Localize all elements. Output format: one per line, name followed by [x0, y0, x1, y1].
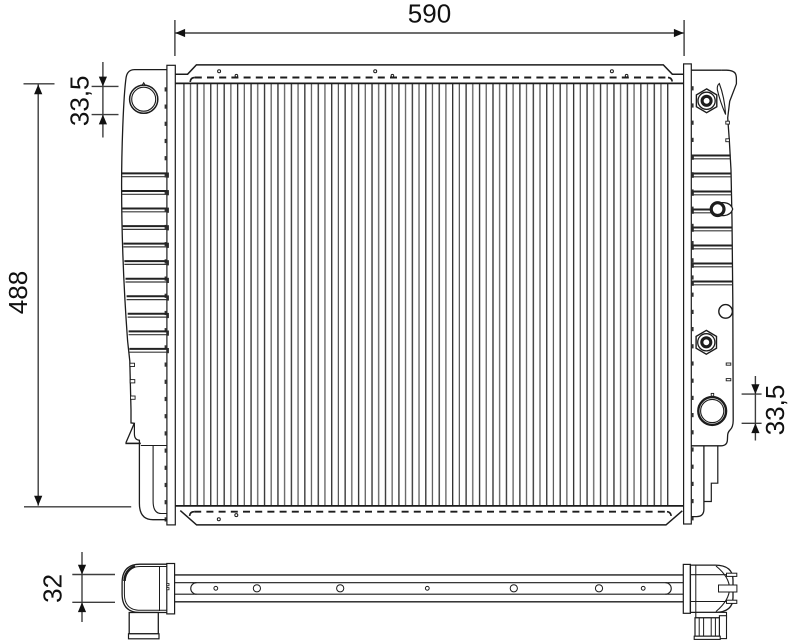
svg-text:33,5: 33,5 — [760, 385, 790, 436]
svg-text:33,5: 33,5 — [65, 75, 95, 126]
svg-text:488: 488 — [3, 271, 33, 314]
svg-text:32: 32 — [38, 574, 68, 603]
svg-text:590: 590 — [408, 0, 451, 28]
